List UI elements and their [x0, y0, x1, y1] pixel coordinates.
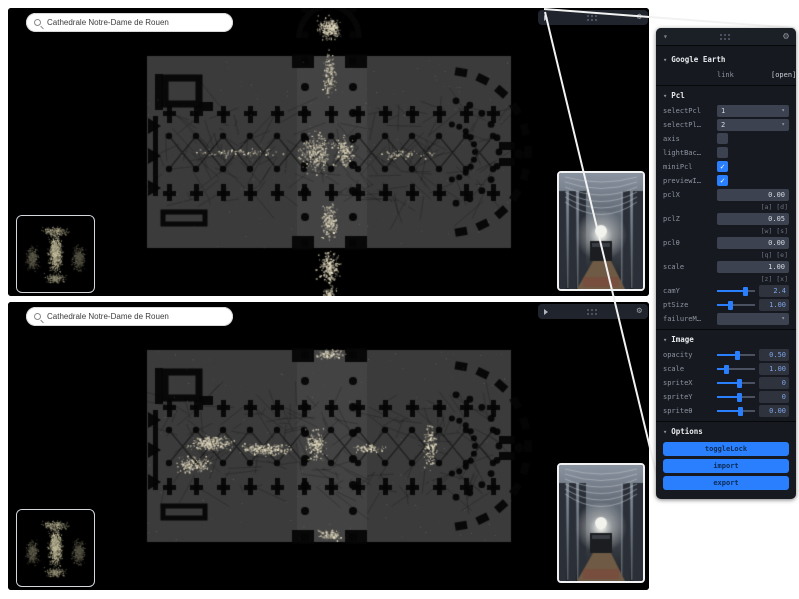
separator — [656, 329, 796, 330]
search-bar-top[interactable] — [26, 13, 233, 32]
settings-panel-header[interactable]: ▾ ⚙ — [656, 28, 796, 46]
selectPcl-dropdown[interactable]: 1 ▾ — [717, 105, 789, 117]
row-link: link [open] — [663, 68, 789, 81]
spriteTheta-slider[interactable] — [717, 405, 755, 417]
gear-icon[interactable]: ⚙ — [637, 13, 642, 22]
pcl-scale-input[interactable]: 1.00 — [717, 261, 789, 273]
drag-handle-dots-icon[interactable] — [587, 15, 597, 21]
row-failureMode: failureM… ▾ — [663, 312, 789, 325]
section-image[interactable]: ▾ Image — [663, 332, 789, 347]
row-previewImage: previewI… ✓ — [663, 174, 789, 187]
pclZ-input[interactable]: 0.05 — [717, 213, 789, 225]
drag-handle-dots-icon[interactable] — [587, 309, 597, 315]
gear-icon[interactable]: ⚙ — [637, 307, 642, 316]
section-options[interactable]: ▾ Options — [663, 424, 789, 439]
spriteX-value[interactable]: 0 — [759, 377, 789, 389]
import-button[interactable]: import — [663, 459, 789, 473]
collapse-chevron-icon[interactable]: ▾ — [663, 32, 668, 41]
viewport-top[interactable]: ⚙ — [8, 8, 649, 296]
preview-photo-top[interactable] — [557, 171, 645, 291]
slider-knob[interactable] — [737, 379, 742, 388]
separator — [656, 85, 796, 86]
row-pclZ: pclZ 0.05 — [663, 212, 789, 225]
camY-value[interactable]: 2.4 — [759, 285, 789, 297]
failureMode-dropdown[interactable]: ▾ — [717, 313, 789, 325]
pclX-key-hint: [a] [d] — [663, 202, 788, 211]
row-spriteTheta: spriteθ 0.00 — [663, 404, 789, 417]
search-bar-bottom[interactable] — [26, 307, 233, 326]
row-miniPcl: miniPcl ✓ — [663, 160, 789, 173]
chevron-down-icon: ▾ — [663, 92, 667, 100]
previewImage-checkbox[interactable]: ✓ — [717, 175, 728, 186]
chevron-down-icon: ▾ — [781, 315, 785, 322]
pointcloud-canvas-top[interactable] — [8, 8, 649, 296]
camY-slider[interactable] — [717, 285, 755, 297]
preview-photo-bottom[interactable] — [557, 463, 645, 583]
section-google-earth[interactable]: ▾ Google Earth — [663, 52, 789, 67]
ptSize-slider[interactable] — [717, 299, 755, 311]
row-pclTheta: pclθ 0.00 — [663, 236, 789, 249]
mini-pointcloud-canvas — [17, 510, 93, 585]
pclX-input[interactable]: 0.00 — [717, 189, 789, 201]
miniPcl-checkbox[interactable]: ✓ — [717, 161, 728, 172]
chevron-down-icon: ▾ — [663, 56, 667, 64]
spriteY-slider[interactable] — [717, 391, 755, 403]
collapsed-settings-bar-top[interactable]: ⚙ — [538, 10, 648, 25]
gear-icon[interactable]: ⚙ — [783, 31, 789, 42]
search-input-bottom[interactable] — [47, 312, 225, 321]
spriteX-slider[interactable] — [717, 377, 755, 389]
selectPl-dropdown[interactable]: 2 ▾ — [717, 119, 789, 131]
row-selectPcl: selectPcl 1 ▾ — [663, 104, 789, 117]
toggleLock-button[interactable]: toggleLock — [663, 442, 789, 456]
row-ptSize: ptSize 1.00 — [663, 298, 789, 311]
mini-pointcloud-canvas — [17, 216, 93, 291]
cathedral-interior-photo — [559, 173, 643, 289]
collapsed-settings-bar-bottom[interactable]: ⚙ — [538, 304, 648, 319]
spriteTheta-value[interactable]: 0.00 — [759, 405, 789, 417]
image-scale-value[interactable]: 1.00 — [759, 363, 789, 375]
row-pcl-scale: scale 1.00 — [663, 260, 789, 273]
slider-knob[interactable] — [738, 407, 743, 416]
chevron-down-icon: ▾ — [781, 107, 785, 114]
lightBackground-checkbox[interactable]: ✓ — [717, 147, 728, 158]
chevron-down-icon: ▾ — [663, 428, 667, 436]
slider-knob[interactable] — [737, 393, 742, 402]
search-input-top[interactable] — [47, 18, 225, 27]
settings-panel: ▾ ⚙ ▾ Google Earth link [open] ▾ Pcl sel… — [656, 28, 796, 499]
cathedral-interior-photo — [559, 465, 643, 581]
row-spriteX: spriteX 0 — [663, 376, 789, 389]
export-button[interactable]: export — [663, 476, 789, 490]
row-image-scale: scale 1.00 — [663, 362, 789, 375]
slider-knob[interactable] — [743, 287, 748, 296]
slider-knob[interactable] — [735, 351, 740, 360]
search-icon — [34, 19, 41, 26]
row-axis: axis ✓ — [663, 132, 789, 145]
pointcloud-canvas-bottom[interactable] — [8, 302, 649, 590]
row-opacity: opacity 0.50 — [663, 348, 789, 361]
chevron-down-icon: ▾ — [781, 121, 785, 128]
spriteY-value[interactable]: 0 — [759, 391, 789, 403]
row-camY: camY 2.4 — [663, 284, 789, 297]
opacity-value[interactable]: 0.50 — [759, 349, 789, 361]
slider-knob[interactable] — [724, 365, 729, 374]
separator — [656, 421, 796, 422]
row-spriteY: spriteY 0 — [663, 390, 789, 403]
drag-handle-dots-icon[interactable] — [720, 34, 730, 40]
pclZ-key-hint: [w] [s] — [663, 226, 788, 235]
pclTheta-input[interactable]: 0.00 — [717, 237, 789, 249]
expand-triangle-icon[interactable] — [544, 309, 548, 315]
row-pclX: pclX 0.00 — [663, 188, 789, 201]
search-icon — [34, 313, 41, 320]
expand-triangle-icon[interactable] — [544, 15, 548, 21]
slider-knob[interactable] — [728, 301, 733, 310]
chevron-down-icon: ▾ — [663, 336, 667, 344]
ptSize-value[interactable]: 1.00 — [759, 299, 789, 311]
pcl-scale-key-hint: [z] [x] — [663, 274, 788, 283]
viewport-bottom[interactable]: ⚙ — [8, 302, 649, 590]
opacity-slider[interactable] — [717, 349, 755, 361]
section-pcl[interactable]: ▾ Pcl — [663, 88, 789, 103]
axis-checkbox[interactable]: ✓ — [717, 133, 728, 144]
row-selectPl: selectPl… 2 ▾ — [663, 118, 789, 131]
row-lightBackground: lightBac… ✓ — [663, 146, 789, 159]
mini-pointcloud-thumbnail-top[interactable] — [16, 215, 95, 293]
link-open-button[interactable]: [open] — [771, 71, 796, 79]
mini-pointcloud-thumbnail-bottom[interactable] — [16, 509, 95, 587]
image-scale-slider[interactable] — [717, 363, 755, 375]
pclTheta-key-hint: [q] [e] — [663, 250, 788, 259]
